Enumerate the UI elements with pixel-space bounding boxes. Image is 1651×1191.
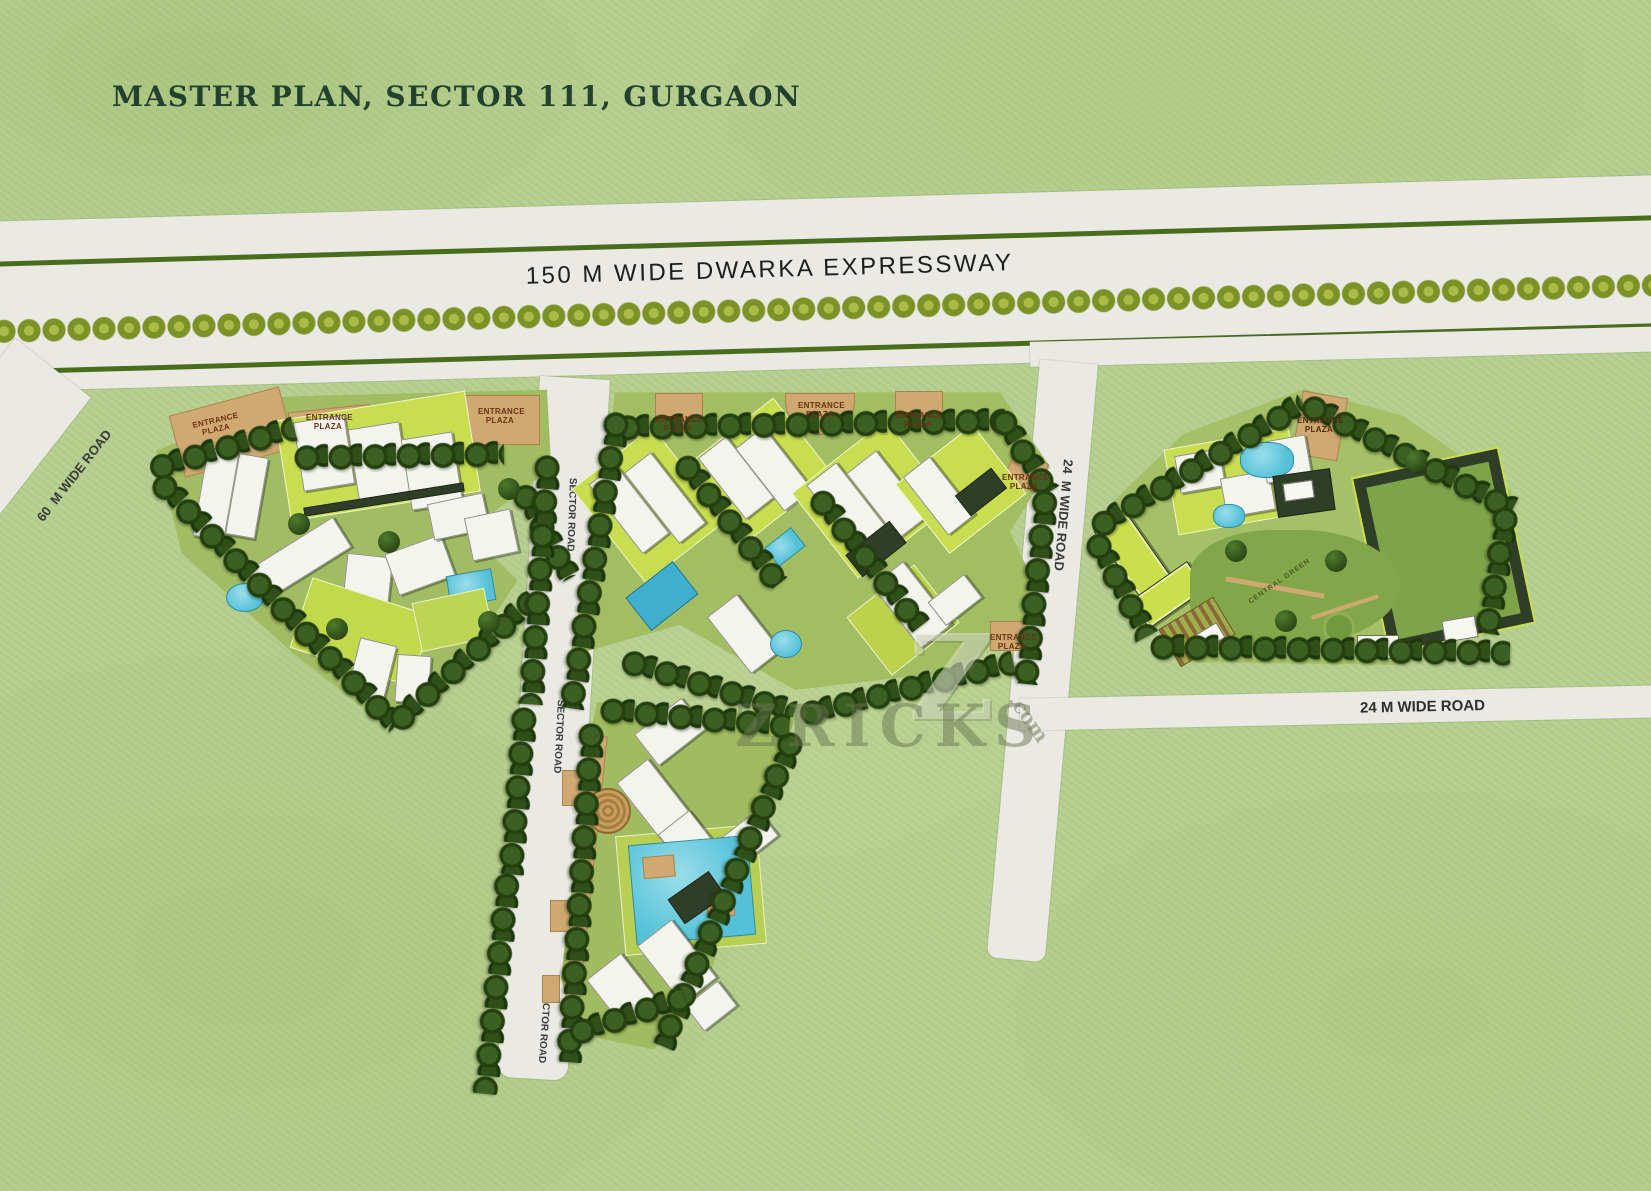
tree <box>478 611 500 633</box>
building <box>348 421 411 500</box>
entrance-plaza-label: ENTRANCE PLAZA <box>478 407 522 425</box>
dwarka-expressway-road: 150 M WIDE DWARKA EXPRESSWAY <box>0 173 1651 393</box>
entrance-plaza-label: ENTRANCE PLAZA <box>990 633 1034 651</box>
entrance-plaza-label: ENTRANCE PLAZA <box>1002 473 1046 491</box>
entrance-plaza-label: ENTRANCE PLAZA <box>798 401 842 419</box>
building <box>464 509 519 562</box>
building <box>394 654 431 704</box>
master-plan-canvas: MASTER PLAN, SECTOR 111, GURGAON 150 M W… <box>0 0 1651 1191</box>
swimming-pool <box>1240 442 1294 478</box>
road-24m-horizontal-label: 24 M WIDE ROAD <box>1360 697 1485 717</box>
round-pond <box>1323 612 1355 644</box>
mandala-garden <box>585 788 631 834</box>
cluster-middle-lower <box>540 690 840 1085</box>
gate-plaza <box>562 770 584 806</box>
tree <box>378 531 400 553</box>
clubhouse <box>1272 468 1335 518</box>
building-label-box <box>1283 480 1315 502</box>
pond <box>226 583 264 612</box>
entrance-plaza-label: ENTRANCE PLAZA <box>306 413 350 431</box>
pond <box>1213 504 1245 528</box>
gate-plaza <box>542 975 560 1003</box>
road-24m-horizontal: 24 M WIDE ROAD <box>1020 685 1651 731</box>
swimming-pool <box>628 835 756 945</box>
pond <box>770 630 802 658</box>
building-label-box <box>1441 615 1478 643</box>
entrance-plaza-label: ENTRANCE PLAZA <box>656 415 700 433</box>
page-title: MASTER PLAN, SECTOR 111, GURGAON <box>112 80 801 113</box>
tree <box>288 513 310 535</box>
tree <box>498 478 520 500</box>
entrance-plaza-label: ENTRANCE PLAZA <box>896 411 940 429</box>
tree <box>1325 550 1347 572</box>
expressway-label: 150 M WIDE DWARKA EXPRESSWAY <box>419 246 1120 294</box>
pool-deck <box>642 854 676 879</box>
tree <box>1405 450 1427 472</box>
cluster-middle-upper: ENTRANCE PLAZA ENTRANCE PLAZA ENTRANCE P… <box>560 383 1060 693</box>
building <box>1174 448 1226 493</box>
gate-plaza <box>550 900 570 932</box>
cluster-left: ENTRANCE PLAZA ENTRANCE PLAZA ENTRANCE P… <box>148 383 568 723</box>
tree <box>1275 610 1297 632</box>
tree <box>326 618 348 640</box>
cluster-right: CENTRAL GREEN ENTRANCE PLAZA <box>1075 380 1525 680</box>
building-label-box <box>1357 635 1399 659</box>
entrance-plaza-label: ENTRANCE PLAZA <box>1297 416 1341 434</box>
tree <box>1225 540 1247 562</box>
